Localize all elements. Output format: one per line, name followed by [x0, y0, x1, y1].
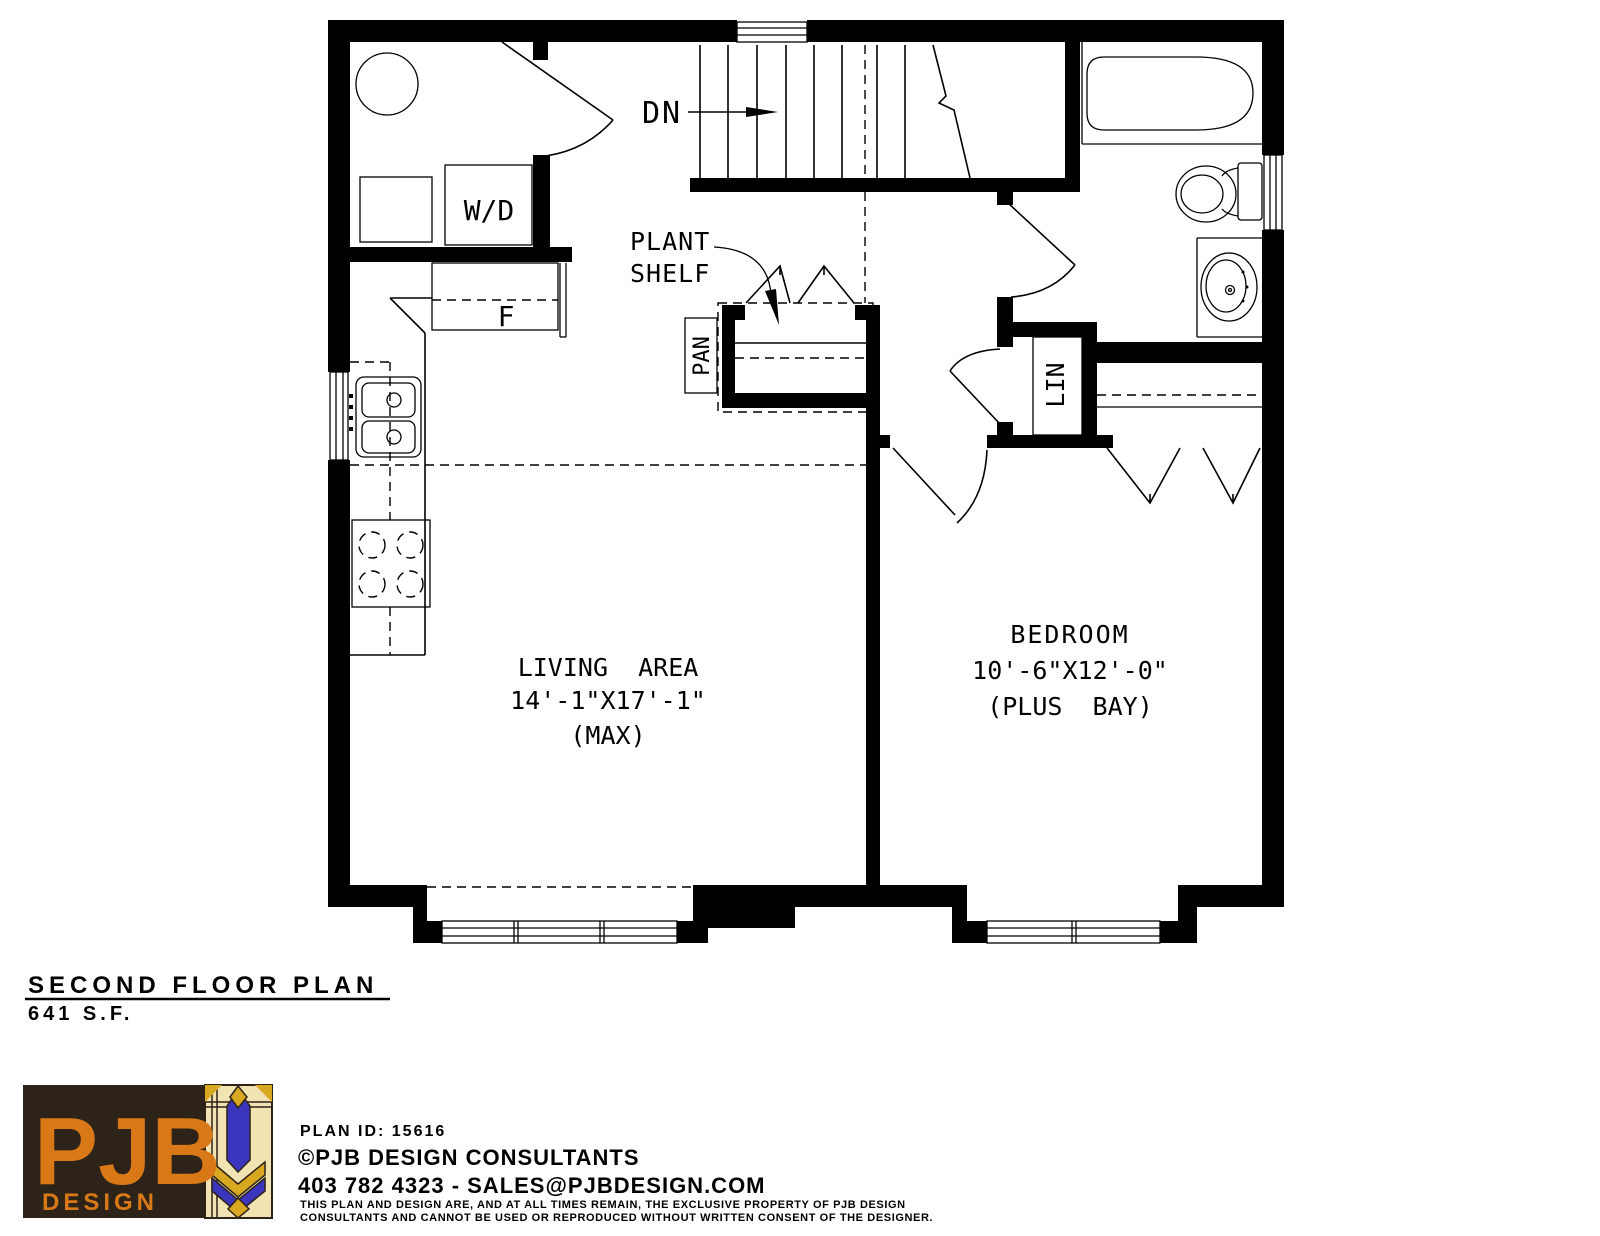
sheet-area: 641 S.F.	[28, 1003, 133, 1025]
bedroom-note: (PLUS BAY)	[987, 692, 1153, 721]
hall-door	[950, 349, 1000, 424]
plant-shelf-label-line2: SHELF	[630, 259, 710, 288]
window-kitchen	[330, 372, 348, 460]
interior-walls	[350, 42, 1262, 885]
bay-window-bedroom	[987, 921, 1160, 943]
footer-info: PLAN ID: 15616 ©PJB DESIGN CONSULTANTS 4…	[298, 1123, 933, 1224]
stairs-down-label: DN	[642, 96, 682, 131]
kitchen-counter	[350, 298, 866, 655]
bedroom-name: BEDROOM	[1010, 620, 1129, 649]
bay-window-living	[442, 921, 677, 943]
kitchen-sink	[349, 377, 421, 457]
washer-dryer-label: W/D	[464, 194, 515, 227]
bathroom-door	[1008, 203, 1075, 297]
plan-id: PLAN ID: 15616	[300, 1123, 446, 1140]
disclaimer-line2: CONSULTANTS AND CANNOT BE USED OR REPROD…	[300, 1212, 933, 1224]
plant-shelf-label-line1: PLANT	[630, 227, 710, 256]
disclaimer-line1: THIS PLAN AND DESIGN ARE, AND AT ALL TIM…	[300, 1199, 906, 1211]
bedroom-door	[893, 448, 987, 523]
living-area-name: LIVING AREA	[518, 653, 699, 682]
laundry-cabinet	[360, 177, 432, 242]
stove	[352, 520, 430, 607]
logo-subtext: DESIGN	[42, 1189, 158, 1216]
pantry-label: PAN	[690, 336, 715, 376]
bedroom-closet-shelf	[1097, 395, 1262, 407]
floor-plan-sheet: DN W/D F PAN LIN PLANT SHELF LIVING AREA…	[0, 0, 1600, 1236]
sheet-title: SECOND FLOOR PLAN	[28, 972, 378, 999]
toilet	[1176, 163, 1262, 222]
pantry-bifold-doors	[746, 266, 854, 303]
stair-break-line	[933, 45, 970, 178]
vanity-sink	[1197, 238, 1262, 337]
living-area-dimensions: 14'-1"X17'-1"	[510, 686, 706, 715]
company-name: ©PJB DESIGN CONSULTANTS	[298, 1145, 640, 1170]
living-area-label: LIVING AREA 14'-1"X17'-1" (MAX)	[510, 653, 706, 750]
bedroom-dimensions: 10'-6"X12'-0"	[972, 656, 1168, 685]
closet-bifold-doors	[1107, 448, 1260, 503]
fridge-label: F	[498, 300, 515, 333]
exterior-walls	[328, 20, 1284, 928]
stair-down-arrow	[688, 107, 778, 117]
water-tank	[356, 53, 418, 115]
bedroom-label: BEDROOM 10'-6"X12'-0" (PLUS BAY)	[972, 620, 1168, 721]
living-area-note: (MAX)	[570, 721, 645, 750]
window-bathroom	[1264, 155, 1282, 230]
linen-label: LIN	[1041, 362, 1070, 407]
title-block: SECOND FLOOR PLAN 641 S.F.	[25, 972, 390, 1025]
window-top	[737, 22, 807, 42]
pjb-logo: PJB DESIGN	[23, 1085, 272, 1218]
contact-line: 403 782 4323 - SALES@PJBDESIGN.COM	[298, 1173, 766, 1198]
laundry-door	[502, 42, 613, 157]
bathtub	[1082, 42, 1262, 144]
